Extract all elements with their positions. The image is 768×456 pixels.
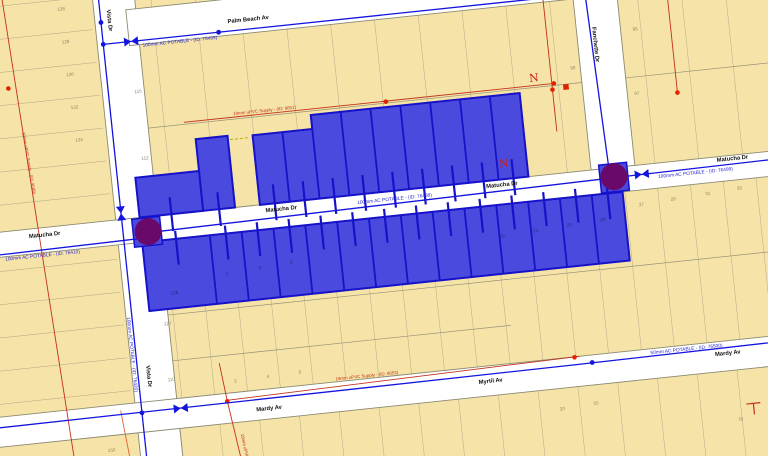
parcel-number: 25 [600,217,606,223]
parcel-number: 127 [164,321,173,327]
north-marker: N [498,157,509,171]
parcel-number: 126 [57,6,66,12]
parcel-number: 97 [634,91,640,97]
map-canvas[interactable]: Palm Beach Av Matucha Dr Matucha Dr Matu… [0,0,768,456]
parcel-number: 33 [737,185,743,191]
parcel-number: 29 [670,196,676,202]
parcel-number: 21 [533,228,539,234]
parcel-number: 110 [167,377,175,383]
selected-parcel [135,171,203,217]
gis-map[interactable]: Palm Beach Av Matucha Dr Matucha Dr Matu… [0,0,768,456]
parcel-number: 25 [593,400,599,406]
parcel-number: 134 [75,137,84,143]
parcel-number: 126 [170,290,179,296]
service-box [563,84,569,90]
parcel-number: 90 [570,65,576,71]
parcel-number: 112 [141,155,149,161]
parcel-number: 130 [66,72,75,78]
parcel-number: 31 [705,191,711,197]
north-marker: N [528,71,539,85]
parcel-number: 115 [134,89,142,95]
parcel-number: 95 [632,26,638,32]
parcel-number: 19 [499,233,505,239]
parcel-number: 128 [62,39,71,45]
selected-parcel [196,136,235,211]
parcel-number: 132 [70,104,79,110]
parcel-number: 27 [639,202,645,208]
parcel-number: 23 [566,222,572,228]
parcel-number: 78 [738,416,744,422]
parcel-number: 20 [560,406,566,412]
parcel-number: 150 [107,447,116,453]
